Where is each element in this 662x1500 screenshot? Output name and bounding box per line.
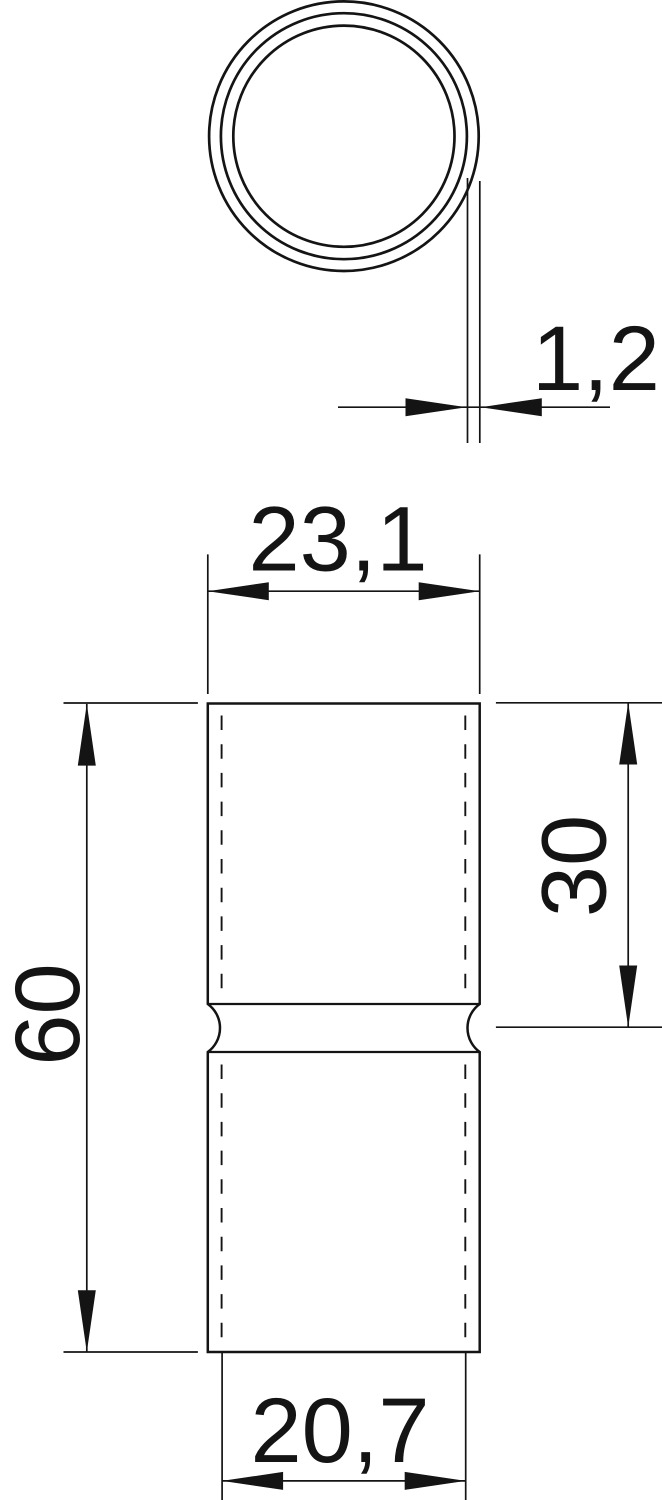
svg-text:30: 30 [524, 815, 626, 917]
svg-text:23,1: 23,1 [248, 488, 427, 590]
svg-text:60: 60 [0, 963, 99, 1065]
svg-text:1,2: 1,2 [532, 308, 660, 410]
svg-text:20,7: 20,7 [250, 1380, 429, 1482]
